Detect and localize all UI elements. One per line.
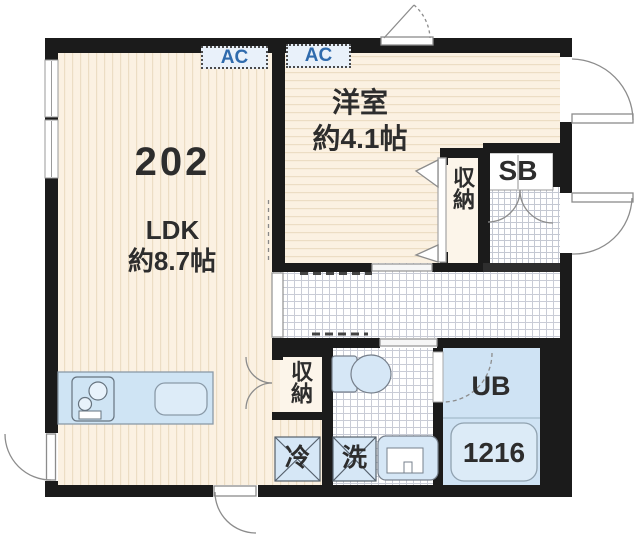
door-leaf-line — [384, 5, 414, 38]
wall-segment — [553, 153, 560, 187]
wall-segment — [45, 485, 572, 497]
unit-bath-door-opening — [433, 352, 443, 402]
door-leaf — [381, 37, 433, 45]
refrigerator-label: 冷 — [275, 445, 320, 473]
unit-bath-label: UB — [460, 372, 522, 402]
door-swing-arc — [414, 5, 430, 38]
door-leaf — [214, 486, 256, 496]
wall-segment — [432, 263, 490, 272]
floor-plan: 202 LDK 約8.7帖 洋室 約4.1帖 収納 収納 SB UB 1216 … — [0, 0, 640, 540]
ac-bedroom-label: AC — [305, 45, 332, 67]
door-leaf — [47, 434, 56, 480]
door-swing-arc — [215, 492, 256, 533]
bedroom-closet-label: 収納 — [451, 166, 473, 210]
door-opening — [560, 57, 572, 122]
door-swing-arc — [5, 434, 51, 480]
sliding-door — [380, 339, 437, 346]
kitchen-sink — [155, 383, 207, 415]
stove-grill — [79, 411, 101, 419]
bathtub-size-label: 1216 — [451, 438, 537, 469]
ldk-label: LDK — [110, 216, 235, 245]
door-swing-arc — [572, 59, 633, 120]
bedroom-size-label: 約4.1帖 — [295, 124, 425, 155]
wash-basin-drain — [404, 462, 412, 473]
shoe-box-label: SB — [486, 156, 550, 187]
hallway-door — [272, 273, 283, 337]
ldk-size-label: 約8.7帖 — [92, 247, 252, 276]
closet-door-line — [438, 158, 446, 262]
wall-segment — [322, 340, 333, 497]
door-opening — [560, 193, 572, 253]
door-leaf — [572, 193, 633, 202]
stove-burner — [89, 382, 107, 400]
wall-segment — [540, 348, 560, 485]
wall-segment — [272, 53, 285, 263]
wall-segment — [437, 338, 560, 348]
wall-segment — [272, 263, 372, 272]
bedroom-label: 洋室 — [300, 88, 420, 119]
entrance-step-edge — [483, 263, 560, 272]
stove-burner — [79, 398, 92, 411]
wall-segment — [483, 143, 560, 153]
door-swing-arc — [572, 198, 632, 254]
ac-ldk-label: AC — [221, 47, 248, 69]
door-leaf — [572, 114, 633, 123]
ac-unit-ldk: AC — [201, 46, 268, 69]
unit-number-label: 202 — [110, 140, 235, 184]
toilet-bowl — [351, 355, 391, 393]
sliding-door — [372, 264, 432, 271]
ac-unit-bedroom: AC — [286, 44, 351, 68]
hall-closet-label: 収納 — [289, 360, 311, 404]
wall-segment — [272, 412, 322, 420]
wall-segment — [272, 348, 322, 357]
washer-label: 洗 — [333, 445, 376, 473]
